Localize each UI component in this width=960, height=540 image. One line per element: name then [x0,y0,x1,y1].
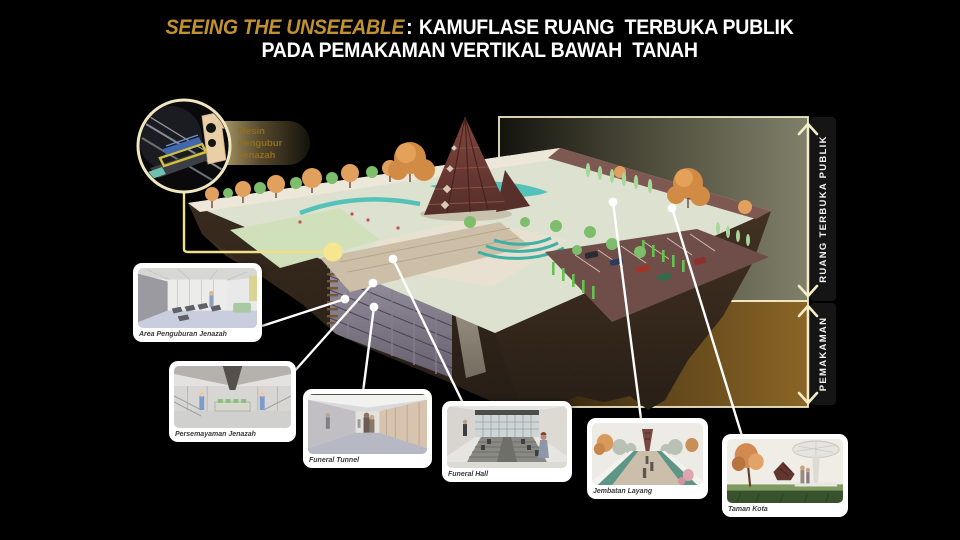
callout-pill-line2: Pengubur [238,138,283,149]
title-highlight: SEEING THE UNSEEABLE [166,16,405,39]
thumbnail-image [727,439,843,503]
thumbnail-caption: Area Penguburan Jenazah [139,331,256,338]
thumbnail-caption: Taman Kota [728,506,842,513]
thumbnail-image [592,423,703,485]
slide: RUANG TERBUKA PUBLIK PEMAKAMAN [0,0,960,540]
thumbnail-card-jembatan-layang: Jembatan Layang [587,418,708,499]
callout-dot [324,243,343,262]
connector-dot [341,295,350,304]
axis-label-public-space: RUANG TERBUKA PUBLIK [818,135,829,283]
thumbnail-caption: Jembatan Layang [593,488,702,495]
slide-title: SEEING THE UNSEEABLE:KAMUFLASE RUANG TER… [0,16,960,62]
thumbnail-card-area-penguburan: Area Penguburan Jenazah [133,263,262,342]
thumbnail-card-funeral-hall: Funeral Hall [442,401,572,482]
title-line1-rest: KAMUFLASE RUANG TERBUKA PUBLIK [419,16,794,39]
thumbnail-card-taman-kota: Taman Kota [722,434,848,517]
zoning-label-strip: RUANG TERBUKA PUBLIK PEMAKAMAN [810,117,836,405]
thumbnail-image [138,268,257,328]
thumbnail-caption: Persemayaman Jenazah [175,431,290,438]
title-line-2: PADA PEMAKAMAN VERTIKAL BAWAH TANAH [166,39,794,62]
connector-dot [369,279,378,288]
title-line-1: SEEING THE UNSEEABLE:KAMUFLASE RUANG TER… [166,16,794,39]
thumbnail-card-persemayaman: Persemayaman Jenazah [169,361,296,442]
axis-label-cemetery: PEMAKAMAN [818,317,829,392]
title-colon: : [406,16,412,39]
connector-dot [389,255,398,264]
thumbnail-image [308,394,427,454]
thumbnail-image [447,406,567,468]
thumbnail-caption: Funeral Tunnel [309,457,426,464]
thumbnail-card-funeral-tunnel: Funeral Tunnel [303,389,432,468]
connector-dot [609,198,618,207]
connector-dot [370,303,379,312]
thumbnail-image [174,366,291,428]
thumbnail-caption: Funeral Hall [448,471,566,478]
callout-pill-line3: Jenazah [238,150,276,161]
callout-pill-line1: Mesin [238,126,265,137]
connector-dot [668,204,677,213]
